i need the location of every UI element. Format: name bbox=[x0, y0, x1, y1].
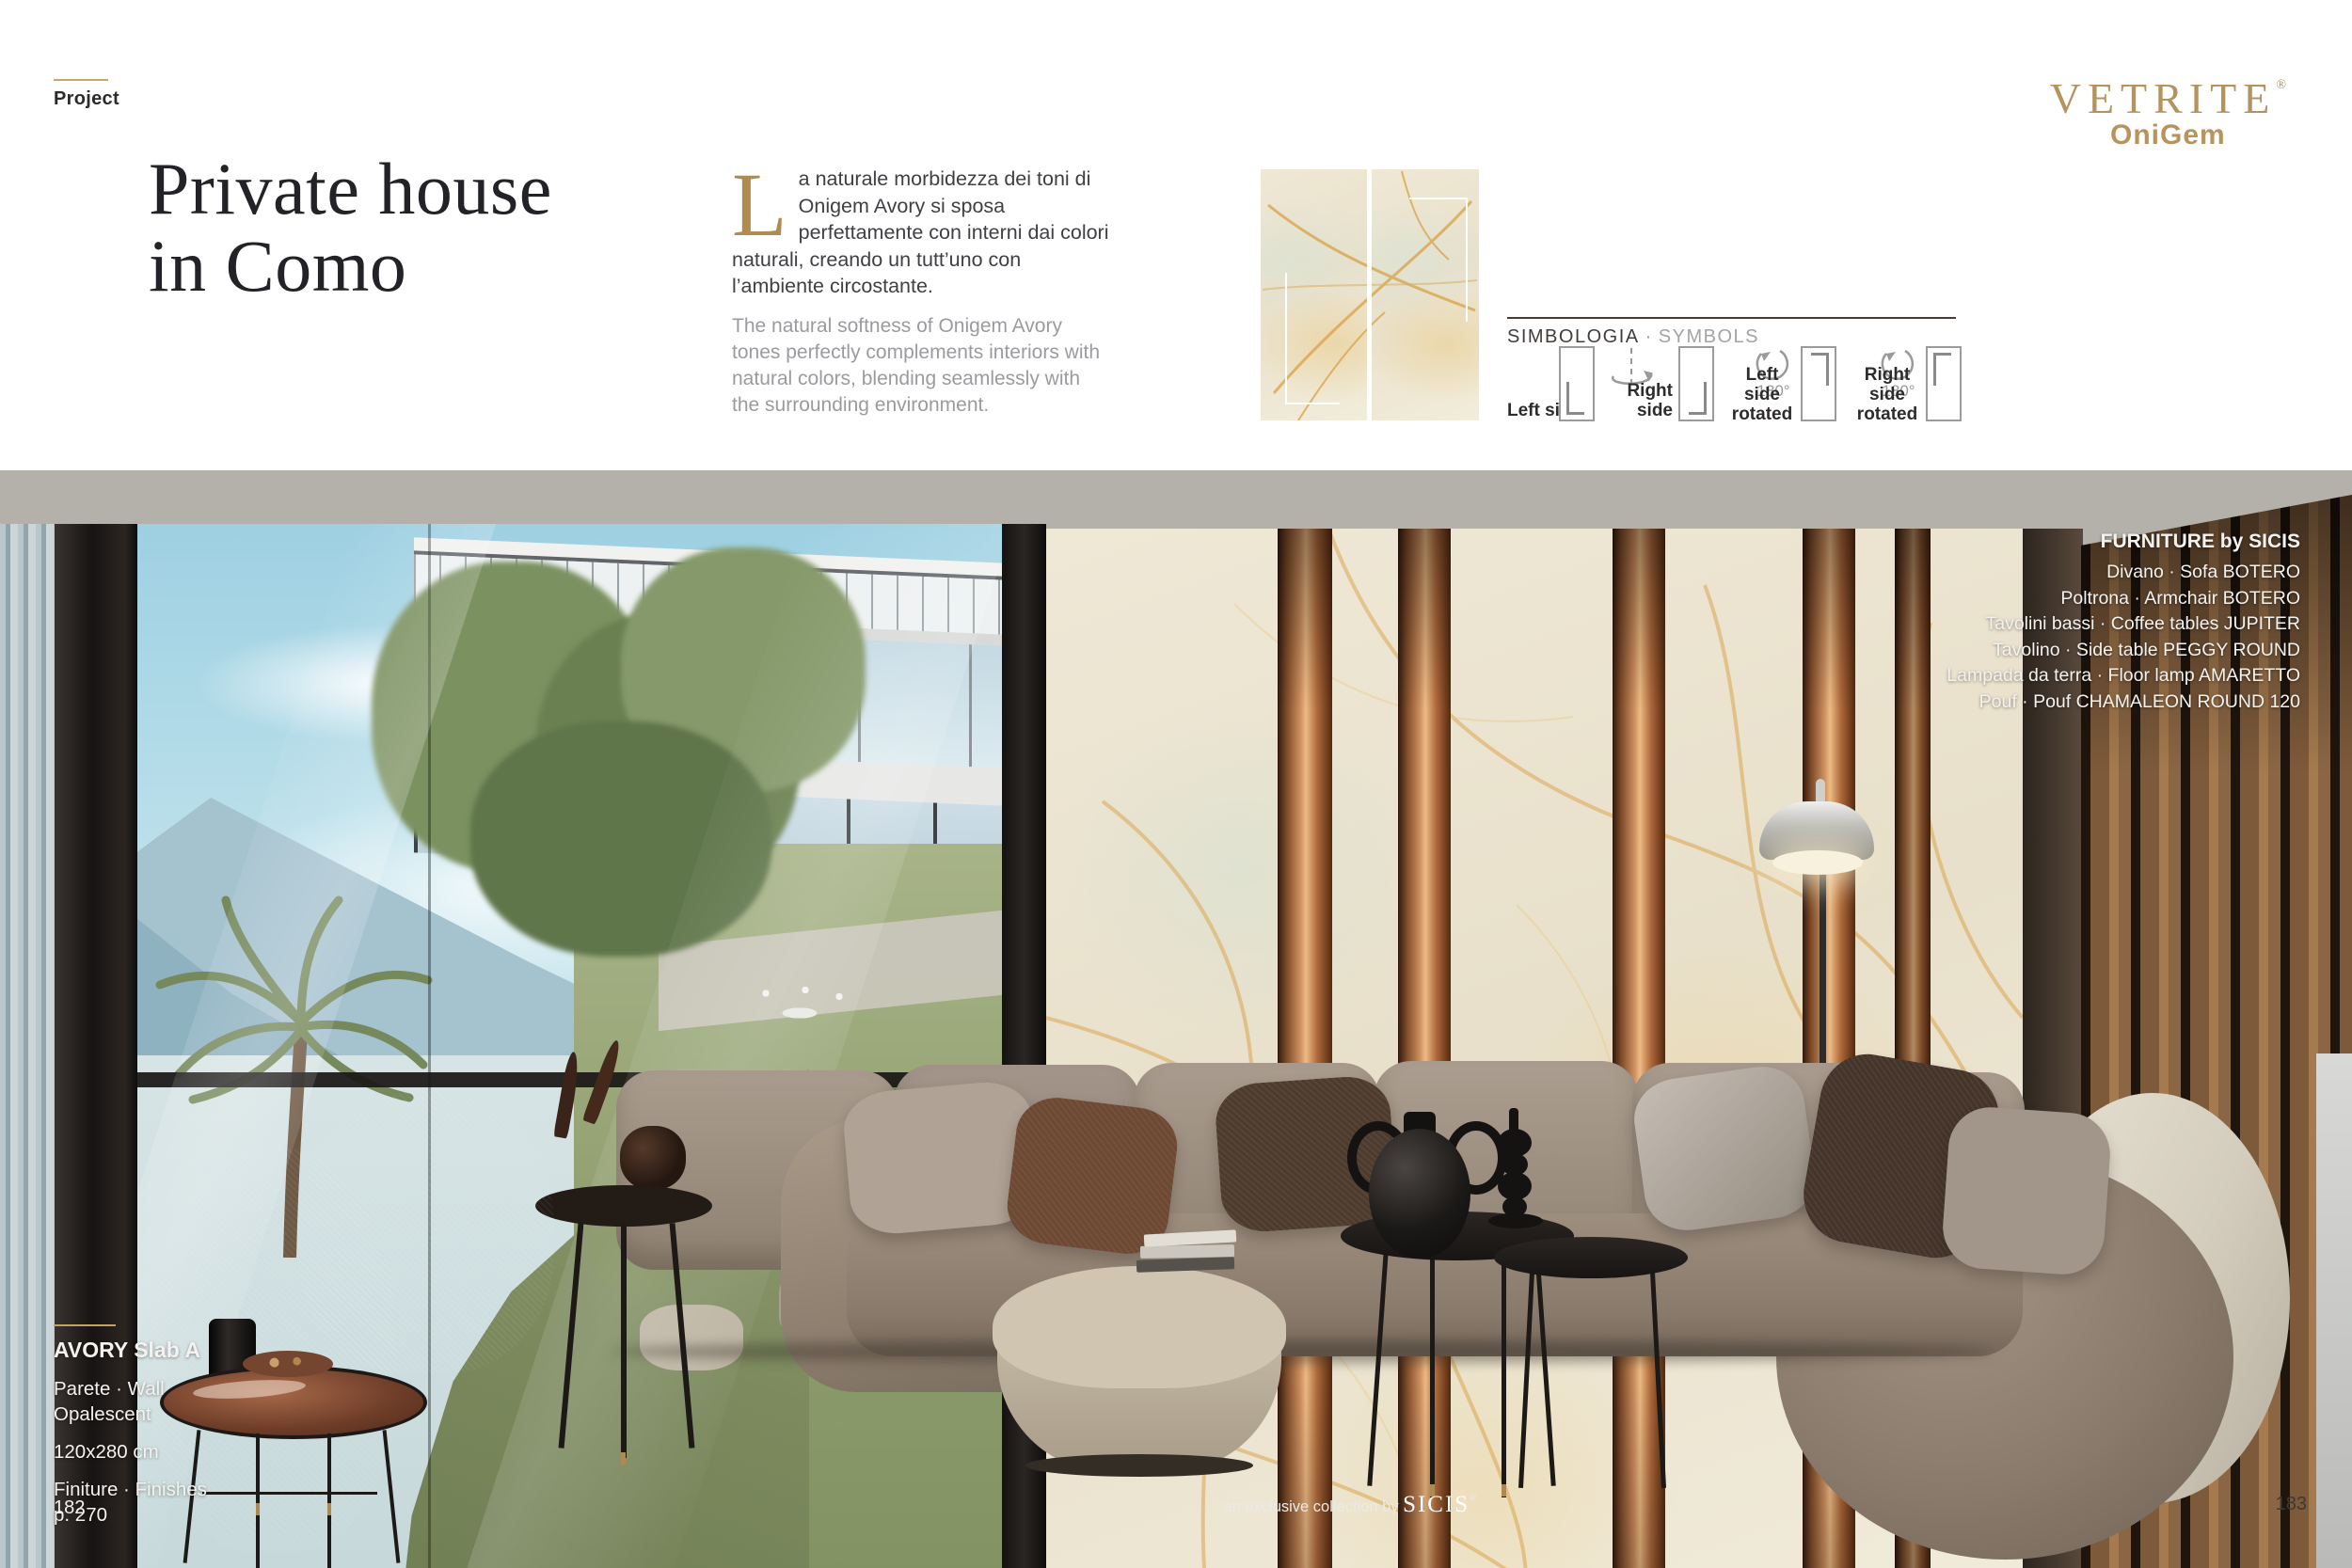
book bbox=[1140, 1244, 1234, 1259]
registered-mark: ® bbox=[2276, 78, 2286, 92]
brand-logo: VETRITE® OniGem bbox=[2050, 73, 2286, 151]
sofa-shadow bbox=[612, 1340, 1994, 1363]
onigem-logo: OniGem bbox=[2050, 119, 2286, 151]
furniture-list-item: Poltrona · Armchair BOTERO bbox=[1947, 586, 2300, 612]
slab-caption-title: AVORY Slab A bbox=[54, 1338, 207, 1363]
symbols-divider bbox=[1507, 317, 1956, 319]
intro-english: The natural softness of Onigem Avory ton… bbox=[732, 313, 1112, 419]
side-table-dark bbox=[535, 1185, 712, 1227]
black-vase bbox=[1369, 1129, 1470, 1259]
symbols-heading-separator: · bbox=[1640, 326, 1659, 347]
furniture-list-item: Divano · Sofa BOTERO bbox=[1947, 560, 2300, 586]
symbol-right-side bbox=[1678, 346, 1714, 421]
table-foot bbox=[621, 1452, 626, 1465]
furniture-list: FURNITURE by SICIS Divano · Sofa BOTERO … bbox=[1947, 531, 2300, 715]
page-title-line2: in Como bbox=[149, 228, 552, 305]
furniture-list-item: Lampada da terra · Floor lamp AMARETTO bbox=[1947, 663, 2300, 689]
caption-accent-rule bbox=[54, 1324, 116, 1326]
symbol-label-right-side: Right side bbox=[1599, 382, 1673, 421]
crop-mark-left-panel bbox=[1285, 273, 1340, 404]
page-title-line1: Private house bbox=[149, 150, 552, 228]
project-label: Project bbox=[54, 88, 119, 110]
table-leg bbox=[327, 1433, 331, 1568]
table-leg bbox=[1502, 1255, 1506, 1497]
vetrite-logo: VETRITE® bbox=[2050, 73, 2286, 123]
sicis-logo: SICIS bbox=[1403, 1492, 1470, 1517]
doorway-light bbox=[2316, 1053, 2352, 1568]
coffee-table-low bbox=[1494, 1237, 1688, 1278]
table-leg bbox=[621, 1225, 627, 1458]
floor-lamp-glow bbox=[1772, 850, 1863, 875]
slab-caption-line: Opalescent bbox=[54, 1402, 207, 1427]
registered-mark: ® bbox=[1470, 1493, 1476, 1503]
page-title: Private house in Como bbox=[149, 150, 552, 305]
furniture-list-item: Tavolini bassi · Coffee tables JUPITER bbox=[1947, 611, 2300, 638]
intro-italian: a naturale morbidezza dei toni di Onigem… bbox=[732, 167, 1109, 297]
table-strut bbox=[202, 1492, 377, 1495]
slab-mark-icon bbox=[1933, 353, 1951, 386]
candlestick-base bbox=[1488, 1213, 1543, 1228]
slab-gap bbox=[1367, 169, 1372, 420]
pillow-silver bbox=[1629, 1061, 1820, 1236]
table-foot bbox=[256, 1503, 260, 1515]
collection-credit: an exclusive collection by SICIS® bbox=[1115, 1492, 1585, 1518]
symbol-left-side bbox=[1559, 346, 1595, 421]
furniture-list-item: Tavolino · Side table PEGGY ROUND bbox=[1947, 638, 2300, 664]
symbols-heading-en: SYMBOLS bbox=[1659, 326, 1759, 347]
slab-caption-line: Parete · Wall bbox=[54, 1376, 207, 1402]
symbols-heading-it: SIMBOLOGIA bbox=[1507, 326, 1640, 347]
catalog-spread: Project Private house in Como L a natura… bbox=[0, 0, 2352, 1568]
page-number-right: 183 bbox=[2276, 1494, 2307, 1515]
intro-text: L a naturale morbidezza dei toni di Onig… bbox=[732, 166, 1112, 419]
furniture-list-title: FURNITURE by SICIS bbox=[1947, 531, 2300, 553]
copper-pillar bbox=[1398, 529, 1451, 1568]
snack-plate bbox=[243, 1351, 333, 1377]
table-leg bbox=[256, 1433, 260, 1568]
symbol-label-left-side-rotated: Left side rotated bbox=[1727, 366, 1797, 425]
symbol-label-right-side-rotated: Right side rotated bbox=[1852, 366, 1922, 425]
project-photo: FURNITURE by SICIS Divano · Sofa BOTERO … bbox=[0, 470, 2352, 1568]
slab-thumbnail bbox=[1261, 169, 1479, 420]
symbols-row: Left side Right side 180° Left side rota… bbox=[1507, 346, 1978, 427]
pillow bbox=[1940, 1104, 2113, 1277]
furniture-list-item: Pouf · Pouf CHAMALEON ROUND 120 bbox=[1947, 689, 2300, 716]
pouf-top bbox=[993, 1266, 1286, 1388]
slab-caption-line: 120x280 cm bbox=[54, 1439, 207, 1465]
drop-cap: L bbox=[732, 169, 787, 241]
collection-prefix: an exclusive collection by bbox=[1223, 1498, 1398, 1515]
slab-mark-icon bbox=[1566, 382, 1584, 415]
crop-mark-right-panel bbox=[1409, 198, 1468, 322]
symbol-right-side-rotated bbox=[1926, 346, 1962, 421]
slab-mark-icon bbox=[1689, 382, 1707, 415]
symbol-left-side-rotated bbox=[1801, 346, 1836, 421]
table-foot bbox=[327, 1503, 331, 1515]
page-number-left: 182 bbox=[54, 1497, 85, 1519]
copper-pillar bbox=[1278, 529, 1332, 1568]
pouf-base bbox=[1025, 1454, 1253, 1477]
spiked-sculpture bbox=[620, 1126, 686, 1190]
table-leg bbox=[1430, 1255, 1435, 1497]
symbols-heading: SIMBOLOGIA·SYMBOLS bbox=[1507, 326, 1759, 348]
slab-mark-icon bbox=[1811, 353, 1829, 386]
project-accent-rule bbox=[54, 79, 108, 81]
